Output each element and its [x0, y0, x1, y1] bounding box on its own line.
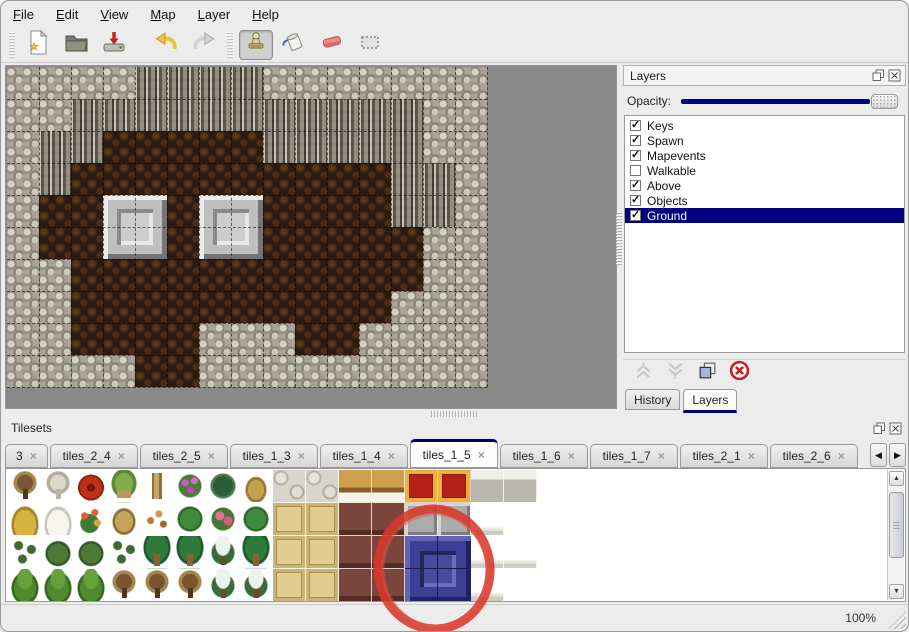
open-map-button[interactable] — [59, 30, 93, 60]
map-tile — [423, 99, 455, 131]
layer-visibility-checkbox[interactable] — [630, 165, 641, 176]
map-tile — [359, 67, 391, 99]
layers-panel: Layers Opacity: ✓Keys✓Spawn✓MapeventsWal… — [623, 65, 906, 413]
layer-row-ground[interactable]: ✓Ground — [625, 208, 904, 223]
undo-button[interactable] — [149, 30, 183, 60]
tileset-tile-sprigs[interactable] — [108, 536, 141, 569]
menu-map[interactable]: Map — [150, 7, 175, 22]
map-tile — [327, 99, 359, 131]
tileset-tile-pine-bush[interactable] — [9, 569, 42, 602]
map-tile — [71, 227, 103, 259]
map-tile — [167, 355, 199, 387]
map-tile — [327, 195, 359, 227]
tileset-tab-label: tiles_2_1 — [693, 449, 741, 463]
tab-close-icon[interactable]: × — [748, 451, 755, 461]
float-tilesets-icon[interactable] — [873, 422, 886, 435]
map-tile — [71, 323, 103, 355]
map-tile — [39, 355, 71, 387]
map-tile — [39, 323, 71, 355]
map-tile — [455, 259, 487, 291]
menu-edit[interactable]: Edit — [56, 7, 78, 22]
map-tile — [391, 99, 423, 131]
tileset-tile-white-cloth[interactable] — [471, 503, 504, 536]
grid-line — [7, 259, 487, 260]
layer-visibility-checkbox[interactable]: ✓ — [630, 135, 641, 146]
tileset-tile-dead-tree[interactable] — [174, 569, 207, 602]
map-tile — [295, 195, 327, 227]
tileset-tab-tiles_1_5[interactable]: tiles_1_5× — [410, 439, 498, 468]
layer-row-spawn[interactable]: ✓Spawn — [625, 133, 904, 148]
menu-file[interactable]: File — [13, 7, 34, 22]
tileset-tile-red-carpet[interactable] — [405, 470, 438, 503]
tileset-tile-leaves[interactable] — [141, 503, 174, 536]
panel-tab-history[interactable]: History — [625, 389, 680, 410]
tileset-tab-tiles_1_7[interactable]: tiles_1_7× — [590, 444, 678, 468]
map-tile — [7, 291, 39, 323]
grid-line — [7, 195, 487, 196]
duplicate-layer-button[interactable] — [697, 360, 718, 386]
layers-panel-title: Layers — [628, 69, 869, 83]
tileset-tab-tiles_2_4[interactable]: tiles_2_4× — [50, 444, 138, 468]
tileset-tab-label: 3 — [16, 449, 23, 463]
map-tile — [7, 227, 39, 259]
tileset-tab-tiles_1_6[interactable]: tiles_1_6× — [500, 444, 588, 468]
map-tile — [71, 99, 103, 131]
layer-row-mapevents[interactable]: ✓Mapevents — [625, 148, 904, 163]
tileset-tile-maroon-furniture[interactable] — [372, 503, 405, 536]
tileset-tile-maroon-furniture[interactable] — [339, 569, 372, 602]
tileset-tile-lily-pad[interactable] — [174, 503, 207, 536]
map-tile — [391, 323, 423, 355]
map-tile — [263, 227, 295, 259]
map-tile — [71, 67, 103, 99]
map-tile — [199, 131, 231, 163]
map-tile — [359, 355, 391, 387]
scroll-tabs-right-button[interactable]: ▶ — [889, 443, 906, 467]
map-tile — [327, 131, 359, 163]
tileset-tile-bush[interactable] — [75, 536, 108, 569]
tileset-tile-snowy-tree[interactable] — [240, 569, 273, 602]
map-tile — [327, 67, 359, 99]
select-tool-button[interactable] — [353, 30, 387, 60]
grid-line — [7, 291, 487, 292]
tileset-tile-empty-white[interactable] — [504, 569, 537, 602]
tileset-tile-white-cloth[interactable] — [471, 536, 504, 569]
map-tile — [167, 163, 199, 195]
map-tile — [103, 67, 135, 99]
grid-line — [7, 99, 487, 100]
tileset-tile-tan-carpet[interactable] — [273, 536, 306, 569]
undo-icon — [153, 29, 179, 60]
map-tile — [423, 131, 455, 163]
tileset-tab-label: tiles_2_4 — [63, 449, 111, 463]
redo-button[interactable] — [187, 30, 221, 60]
tileset-tile-pine-bush[interactable] — [75, 569, 108, 602]
layer-visibility-checkbox[interactable]: ✓ — [630, 210, 641, 221]
map-tile — [263, 99, 295, 131]
tileset-tile-red-flower[interactable] — [75, 470, 108, 503]
tileset-tab-label: tiles_2_5 — [153, 449, 201, 463]
tileset-tile-dead-tree[interactable] — [141, 569, 174, 602]
map-tile — [455, 99, 487, 131]
float-panel-icon[interactable] — [872, 69, 885, 82]
tab-close-icon[interactable]: × — [388, 451, 395, 461]
tileset-tile-snowy-tree[interactable] — [207, 569, 240, 602]
tileset-tile-palm-tree[interactable] — [240, 536, 273, 569]
map-tile — [391, 67, 423, 99]
tileset-tile-sprigs[interactable] — [9, 536, 42, 569]
tileset-tab-label: tiles_1_3 — [243, 449, 291, 463]
map-tile — [231, 131, 263, 163]
scroll-down-button[interactable]: ▼ — [889, 584, 904, 599]
map-tile — [39, 99, 71, 131]
map-tile — [71, 291, 103, 323]
tileset-tile-maroon-furniture[interactable] — [372, 569, 405, 602]
tileset-tile-metal-block[interactable] — [405, 503, 438, 536]
map-tile — [103, 323, 135, 355]
map-tile — [327, 323, 359, 355]
map-tile — [167, 291, 199, 323]
tileset-tile-maroon-furniture[interactable] — [339, 536, 372, 569]
layer-name-label: Spawn — [647, 134, 684, 148]
tileset-tile-snowy-tree[interactable] — [207, 536, 240, 569]
layers-panel-header: Layers — [623, 65, 906, 86]
horizontal-splitter-handle[interactable] — [431, 411, 477, 417]
menu-help[interactable]: Help — [252, 7, 279, 22]
layer-visibility-checkbox[interactable]: ✓ — [630, 150, 641, 161]
map-tile — [263, 163, 295, 195]
tab-close-icon[interactable]: × — [838, 451, 845, 461]
tileset-tile-white-tree[interactable] — [42, 470, 75, 503]
map-tile — [295, 227, 327, 259]
tileset-tab-label: tiles_2_6 — [783, 449, 831, 463]
map-tile — [7, 259, 39, 291]
map-tile — [231, 355, 263, 387]
grid-line — [199, 67, 200, 387]
opacity-slider-handle[interactable] — [871, 94, 898, 109]
tab-close-icon[interactable]: × — [658, 451, 665, 461]
map-tile — [7, 67, 39, 99]
tileset-tab-3[interactable]: 3× — [5, 444, 48, 468]
tileset-tile-fern[interactable] — [207, 470, 240, 503]
tileset-tile-trunk[interactable] — [141, 470, 174, 503]
tileset-tile-snow-pile[interactable] — [42, 503, 75, 536]
tileset-tile-wood-table[interactable] — [339, 470, 372, 503]
menu-layer[interactable]: Layer — [198, 7, 231, 22]
tileset-tile-hay-pile[interactable] — [9, 503, 42, 536]
tab-close-icon[interactable]: × — [30, 451, 37, 461]
tileset-tile-bush[interactable] — [42, 536, 75, 569]
eraser-tool-button[interactable] — [315, 30, 349, 60]
grid-line — [263, 67, 264, 387]
map-tile — [263, 355, 295, 387]
map-tile — [135, 131, 167, 163]
map-tile — [327, 163, 359, 195]
tileset-tile-dead-tree[interactable] — [108, 569, 141, 602]
new-map-button[interactable] — [21, 30, 55, 60]
map-tile — [167, 227, 199, 259]
map-tile — [295, 355, 327, 387]
map-tile — [359, 163, 391, 195]
layer-list: ✓Keys✓Spawn✓MapeventsWalkable✓Above✓Obje… — [624, 115, 905, 353]
map-tile — [199, 67, 231, 99]
selected-tile-highlight[interactable] — [405, 536, 471, 602]
map-tile — [455, 163, 487, 195]
tileset-tile-gray-table[interactable] — [471, 470, 504, 503]
tileset-tile-lily-pad[interactable] — [240, 503, 273, 536]
tileset-tab-label: tiles_1_6 — [513, 449, 561, 463]
grid-line — [167, 67, 168, 387]
map-tile — [455, 227, 487, 259]
tileset-tile-stump[interactable] — [108, 470, 141, 503]
tileset-tile-rose-bush[interactable] — [207, 503, 240, 536]
map-tile — [455, 323, 487, 355]
import-button[interactable] — [97, 30, 131, 60]
statusbar: 100% — [1, 604, 908, 631]
tileset-tab-tiles_2_6[interactable]: tiles_2_6× — [770, 444, 858, 468]
toolbar-grip-2[interactable] — [227, 32, 233, 58]
scroll-tabs-left-button[interactable]: ◀ — [870, 443, 887, 467]
map-tile — [263, 67, 295, 99]
map-tile — [135, 67, 167, 99]
map-tile — [295, 291, 327, 323]
map-tile — [135, 291, 167, 323]
close-panel-icon[interactable] — [888, 69, 901, 82]
tileset-tile-pine-bush[interactable] — [42, 569, 75, 602]
grid-line — [7, 131, 487, 132]
tileset-tile-tan-carpet[interactable] — [273, 569, 306, 602]
tileset-tile-tan-carpet[interactable] — [306, 503, 339, 536]
map-tile — [359, 131, 391, 163]
map-tile — [7, 195, 39, 227]
grid-line — [295, 67, 296, 387]
map-tile — [231, 99, 263, 131]
tileset-tile-red-carpet[interactable] — [438, 470, 471, 503]
tileset-tile-maroon-furniture[interactable] — [339, 503, 372, 536]
layer-visibility-checkbox[interactable]: ✓ — [630, 120, 641, 131]
scroll-up-button[interactable]: ▲ — [889, 471, 904, 486]
layer-name-label: Mapevents — [647, 149, 706, 163]
map-tile — [455, 67, 487, 99]
map-tile — [295, 99, 327, 131]
map-canvas[interactable] — [7, 67, 487, 387]
map-tile — [359, 323, 391, 355]
opacity-label: Opacity: — [627, 94, 671, 108]
map-tile — [103, 99, 135, 131]
map-tile — [391, 355, 423, 387]
scrollbar-thumb[interactable] — [889, 492, 904, 558]
tileset-tab-label: tiles_1_4 — [333, 449, 381, 463]
eraser-icon — [319, 29, 345, 60]
map-tile — [135, 99, 167, 131]
map-tile — [39, 163, 71, 195]
map-tile — [231, 291, 263, 323]
map-tile — [327, 355, 359, 387]
grid-line — [391, 67, 392, 387]
map-tile — [167, 99, 199, 131]
map-tile — [391, 227, 423, 259]
map-tile — [231, 67, 263, 99]
map-tile — [327, 227, 359, 259]
map-tile — [263, 259, 295, 291]
map-tile — [71, 131, 103, 163]
open-folder-icon — [63, 29, 89, 60]
zoom-status: 100% — [845, 611, 876, 625]
map-tile — [7, 355, 39, 387]
map-tile — [263, 323, 295, 355]
map-tile — [167, 67, 199, 99]
grid-line — [135, 67, 136, 387]
layer-row-keys[interactable]: ✓Keys — [625, 118, 904, 133]
grid-line — [423, 67, 424, 387]
tileset-vertical-scrollbar: ▲ ▼ — [887, 470, 904, 600]
map-tile — [7, 163, 39, 195]
tileset-tab-tiles_2_5[interactable]: tiles_2_5× — [140, 444, 228, 468]
opacity-slider-track[interactable] — [681, 99, 870, 104]
tileset-content: ▲ ▼ — [5, 468, 906, 602]
stamp-tool-button[interactable] — [239, 30, 273, 60]
map-tile — [391, 163, 423, 195]
map-tile — [423, 227, 455, 259]
tileset-tile-metal-block[interactable] — [438, 503, 471, 536]
toolbar-grip[interactable] — [9, 32, 15, 58]
tileset-tabbar: 3×tiles_2_4×tiles_2_5×tiles_1_3×tiles_1_… — [5, 438, 866, 468]
map-tile — [423, 163, 455, 195]
paint-bucket-icon — [281, 29, 307, 60]
vertical-splitter-handle[interactable] — [616, 213, 622, 265]
map-tile — [167, 259, 199, 291]
tileset-tile-tan-carpet[interactable] — [306, 569, 339, 602]
layer-name-label: Above — [647, 179, 681, 193]
panel-tab-layers[interactable]: Layers — [683, 389, 737, 413]
tileset-tab-tiles_1_4[interactable]: tiles_1_4× — [320, 444, 408, 468]
tab-close-icon[interactable]: × — [298, 451, 305, 461]
tileset-tile-dry-bush[interactable] — [108, 503, 141, 536]
layer-row-above[interactable]: ✓Above — [625, 178, 904, 193]
tileset-tile-pink-flower-bush[interactable] — [174, 470, 207, 503]
map-tile — [103, 131, 135, 163]
delete-layer-button[interactable] — [729, 360, 750, 386]
menu-view[interactable]: View — [100, 7, 128, 22]
map-tile — [71, 163, 103, 195]
tab-close-icon[interactable]: × — [478, 450, 485, 460]
resize-grip[interactable] — [888, 611, 906, 629]
map-tile — [103, 291, 135, 323]
map-tile — [231, 323, 263, 355]
tileset-tile-wood-table[interactable] — [372, 470, 405, 503]
map-tile — [7, 323, 39, 355]
tileset-tab-tiles_1_3[interactable]: tiles_1_3× — [230, 444, 318, 468]
map-tile — [391, 131, 423, 163]
tileset-tile-white-cloth[interactable] — [471, 569, 504, 602]
map-tile — [103, 355, 135, 387]
tileset-tile-orange-flowers[interactable] — [75, 503, 108, 536]
tab-close-icon[interactable]: × — [568, 451, 575, 461]
layer-name-label: Keys — [647, 119, 674, 133]
map-panel — [5, 65, 617, 409]
tileset-tab-label: tiles_1_7 — [603, 449, 651, 463]
map-tile — [199, 291, 231, 323]
layer-row-objects[interactable]: ✓Objects — [625, 193, 904, 208]
map-tile — [231, 259, 263, 291]
map-tile — [391, 259, 423, 291]
map-tile — [199, 323, 231, 355]
map-tile — [199, 259, 231, 291]
map-tile — [39, 227, 71, 259]
layer-name-label: Ground — [647, 209, 687, 223]
fill-tool-button[interactable] — [277, 30, 311, 60]
map-tile — [263, 195, 295, 227]
toolbar — [1, 27, 908, 63]
layer-buttons — [623, 359, 906, 385]
grid-line — [39, 67, 40, 387]
map-tile — [455, 355, 487, 387]
grid-line — [455, 67, 456, 387]
map-tile — [455, 291, 487, 323]
selection-rect-icon — [357, 29, 383, 60]
import-icon — [101, 29, 127, 60]
grid-line — [71, 67, 72, 387]
tileset-tile-empty-white[interactable] — [504, 503, 537, 536]
opacity-row: Opacity: — [623, 91, 906, 111]
tileset-tile-tan-carpet[interactable] — [273, 503, 306, 536]
tileset-tile-maroon-furniture[interactable] — [372, 536, 405, 569]
layer-visibility-checkbox[interactable]: ✓ — [630, 180, 641, 191]
tileset-tile-white-cloth[interactable] — [504, 536, 537, 569]
tab-close-icon[interactable]: × — [118, 451, 125, 461]
tileset-tile-palm-tree[interactable] — [174, 536, 207, 569]
new-file-icon — [25, 29, 51, 60]
tileset-tile-dead-tree[interactable] — [9, 470, 42, 503]
tileset-tile-palm-tree[interactable] — [141, 536, 174, 569]
map-tile — [295, 163, 327, 195]
move-layer-down-button[interactable] — [665, 360, 686, 386]
map-tile — [39, 291, 71, 323]
tileset-tile-tan-carpet[interactable] — [306, 536, 339, 569]
map-tile — [39, 131, 71, 163]
grid-line — [7, 227, 487, 228]
tab-close-icon[interactable]: × — [208, 451, 215, 461]
close-tilesets-icon[interactable] — [889, 422, 902, 435]
map-tile — [167, 131, 199, 163]
map-tile — [71, 355, 103, 387]
map-tile — [199, 355, 231, 387]
stamp-icon — [244, 30, 268, 59]
map-tile — [7, 131, 39, 163]
map-tile — [7, 99, 39, 131]
move-layer-up-button[interactable] — [633, 360, 654, 386]
map-tile — [327, 291, 359, 323]
layer-visibility-checkbox[interactable]: ✓ — [630, 195, 641, 206]
tileset-tab-tiles_2_1[interactable]: tiles_2_1× — [680, 444, 768, 468]
tileset-tile-gray-table[interactable] — [504, 470, 537, 503]
grid-line — [231, 67, 232, 387]
map-tile — [39, 195, 71, 227]
grid-line — [7, 355, 487, 356]
tileset-tile-stone-floor[interactable] — [273, 470, 306, 503]
tileset-tile-stone-floor[interactable] — [306, 470, 339, 503]
grid-line — [7, 323, 487, 324]
tileset-grid[interactable] — [9, 470, 537, 602]
map-tile — [167, 323, 199, 355]
tileset-tile-dead-grass[interactable] — [240, 470, 273, 503]
map-tile — [423, 67, 455, 99]
map-tile — [263, 131, 295, 163]
grid-line — [327, 67, 328, 387]
layer-row-walkable[interactable]: Walkable — [625, 163, 904, 178]
layers-panel-bottom-tabs: HistoryLayers — [623, 389, 737, 413]
map-tile — [423, 355, 455, 387]
